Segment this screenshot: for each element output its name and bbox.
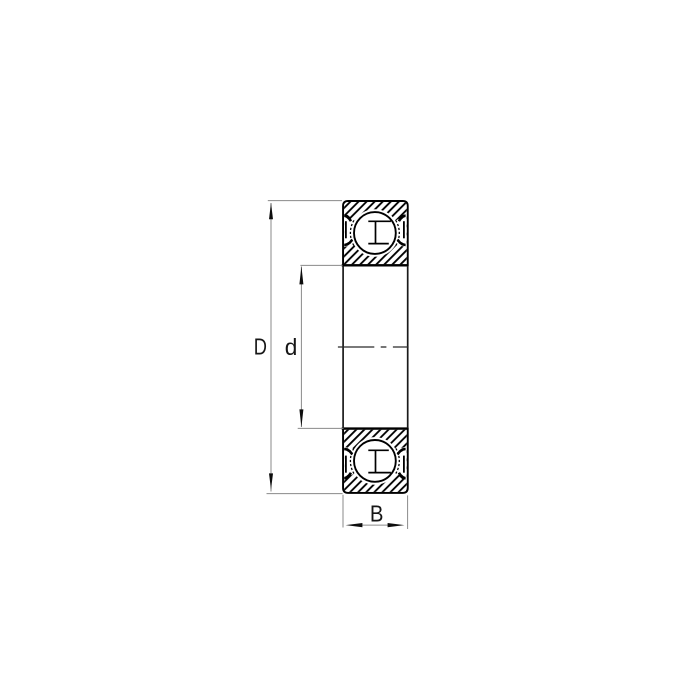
svg-text:D: D: [254, 334, 267, 360]
svg-text:d: d: [285, 334, 298, 360]
svg-text:B: B: [370, 501, 384, 527]
